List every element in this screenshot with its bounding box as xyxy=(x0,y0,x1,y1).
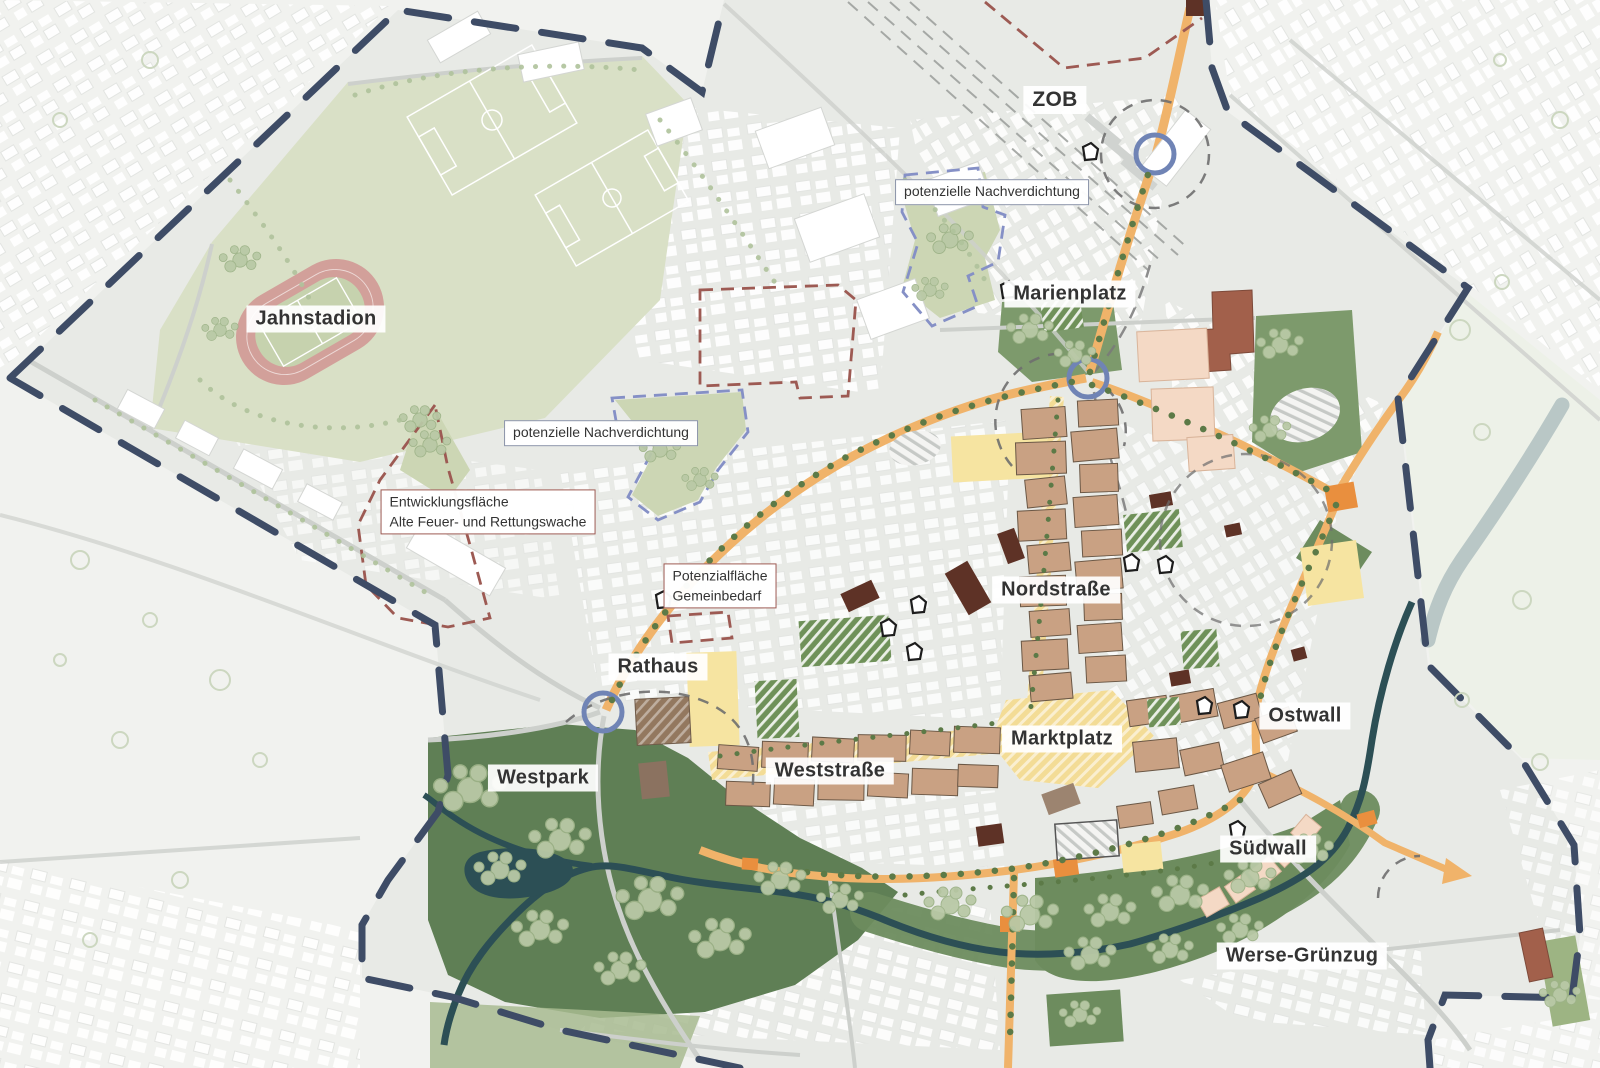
label-rathaus: Rathaus xyxy=(608,654,707,681)
label-marienplatz: Marienplatz xyxy=(1004,281,1135,308)
annotation-line: Alte Feuer- und Rettungswache xyxy=(390,512,587,532)
annotation-development-area: Entwicklungsfläche Alte Feuer- und Rettu… xyxy=(381,489,596,534)
label-jahnstadion: Jahnstadion xyxy=(246,306,385,333)
label-weststrasse: Weststraße xyxy=(766,758,894,785)
label-westpark: Westpark xyxy=(488,765,598,792)
label-marktplatz: Marktplatz xyxy=(1002,726,1122,753)
annotation-densification-north: potenzielle Nachverdichtung xyxy=(895,179,1089,205)
label-ostwall: Ostwall xyxy=(1259,703,1350,730)
annotation-line: Entwicklungsfläche xyxy=(390,492,587,512)
label-suedwall: Südwall xyxy=(1220,836,1316,863)
annotation-line: Gemeinbedarf xyxy=(673,586,768,606)
label-zob: ZOB xyxy=(1023,86,1086,114)
city-map-canvas: ZOB Marienplatz Jahnstadion Nordstraße R… xyxy=(0,0,1600,1068)
label-werse-gruenzug: Werse-Grünzug xyxy=(1217,943,1387,970)
city-map xyxy=(0,0,1600,1068)
annotation-line: Potenzialfläche xyxy=(673,566,768,586)
annotation-densification-center: potenzielle Nachverdichtung xyxy=(504,420,698,446)
rathaus-building xyxy=(635,697,691,746)
annotation-potential-area: Potenzialfläche Gemeinbedarf xyxy=(664,563,777,608)
label-nordstrasse: Nordstraße xyxy=(992,577,1120,604)
